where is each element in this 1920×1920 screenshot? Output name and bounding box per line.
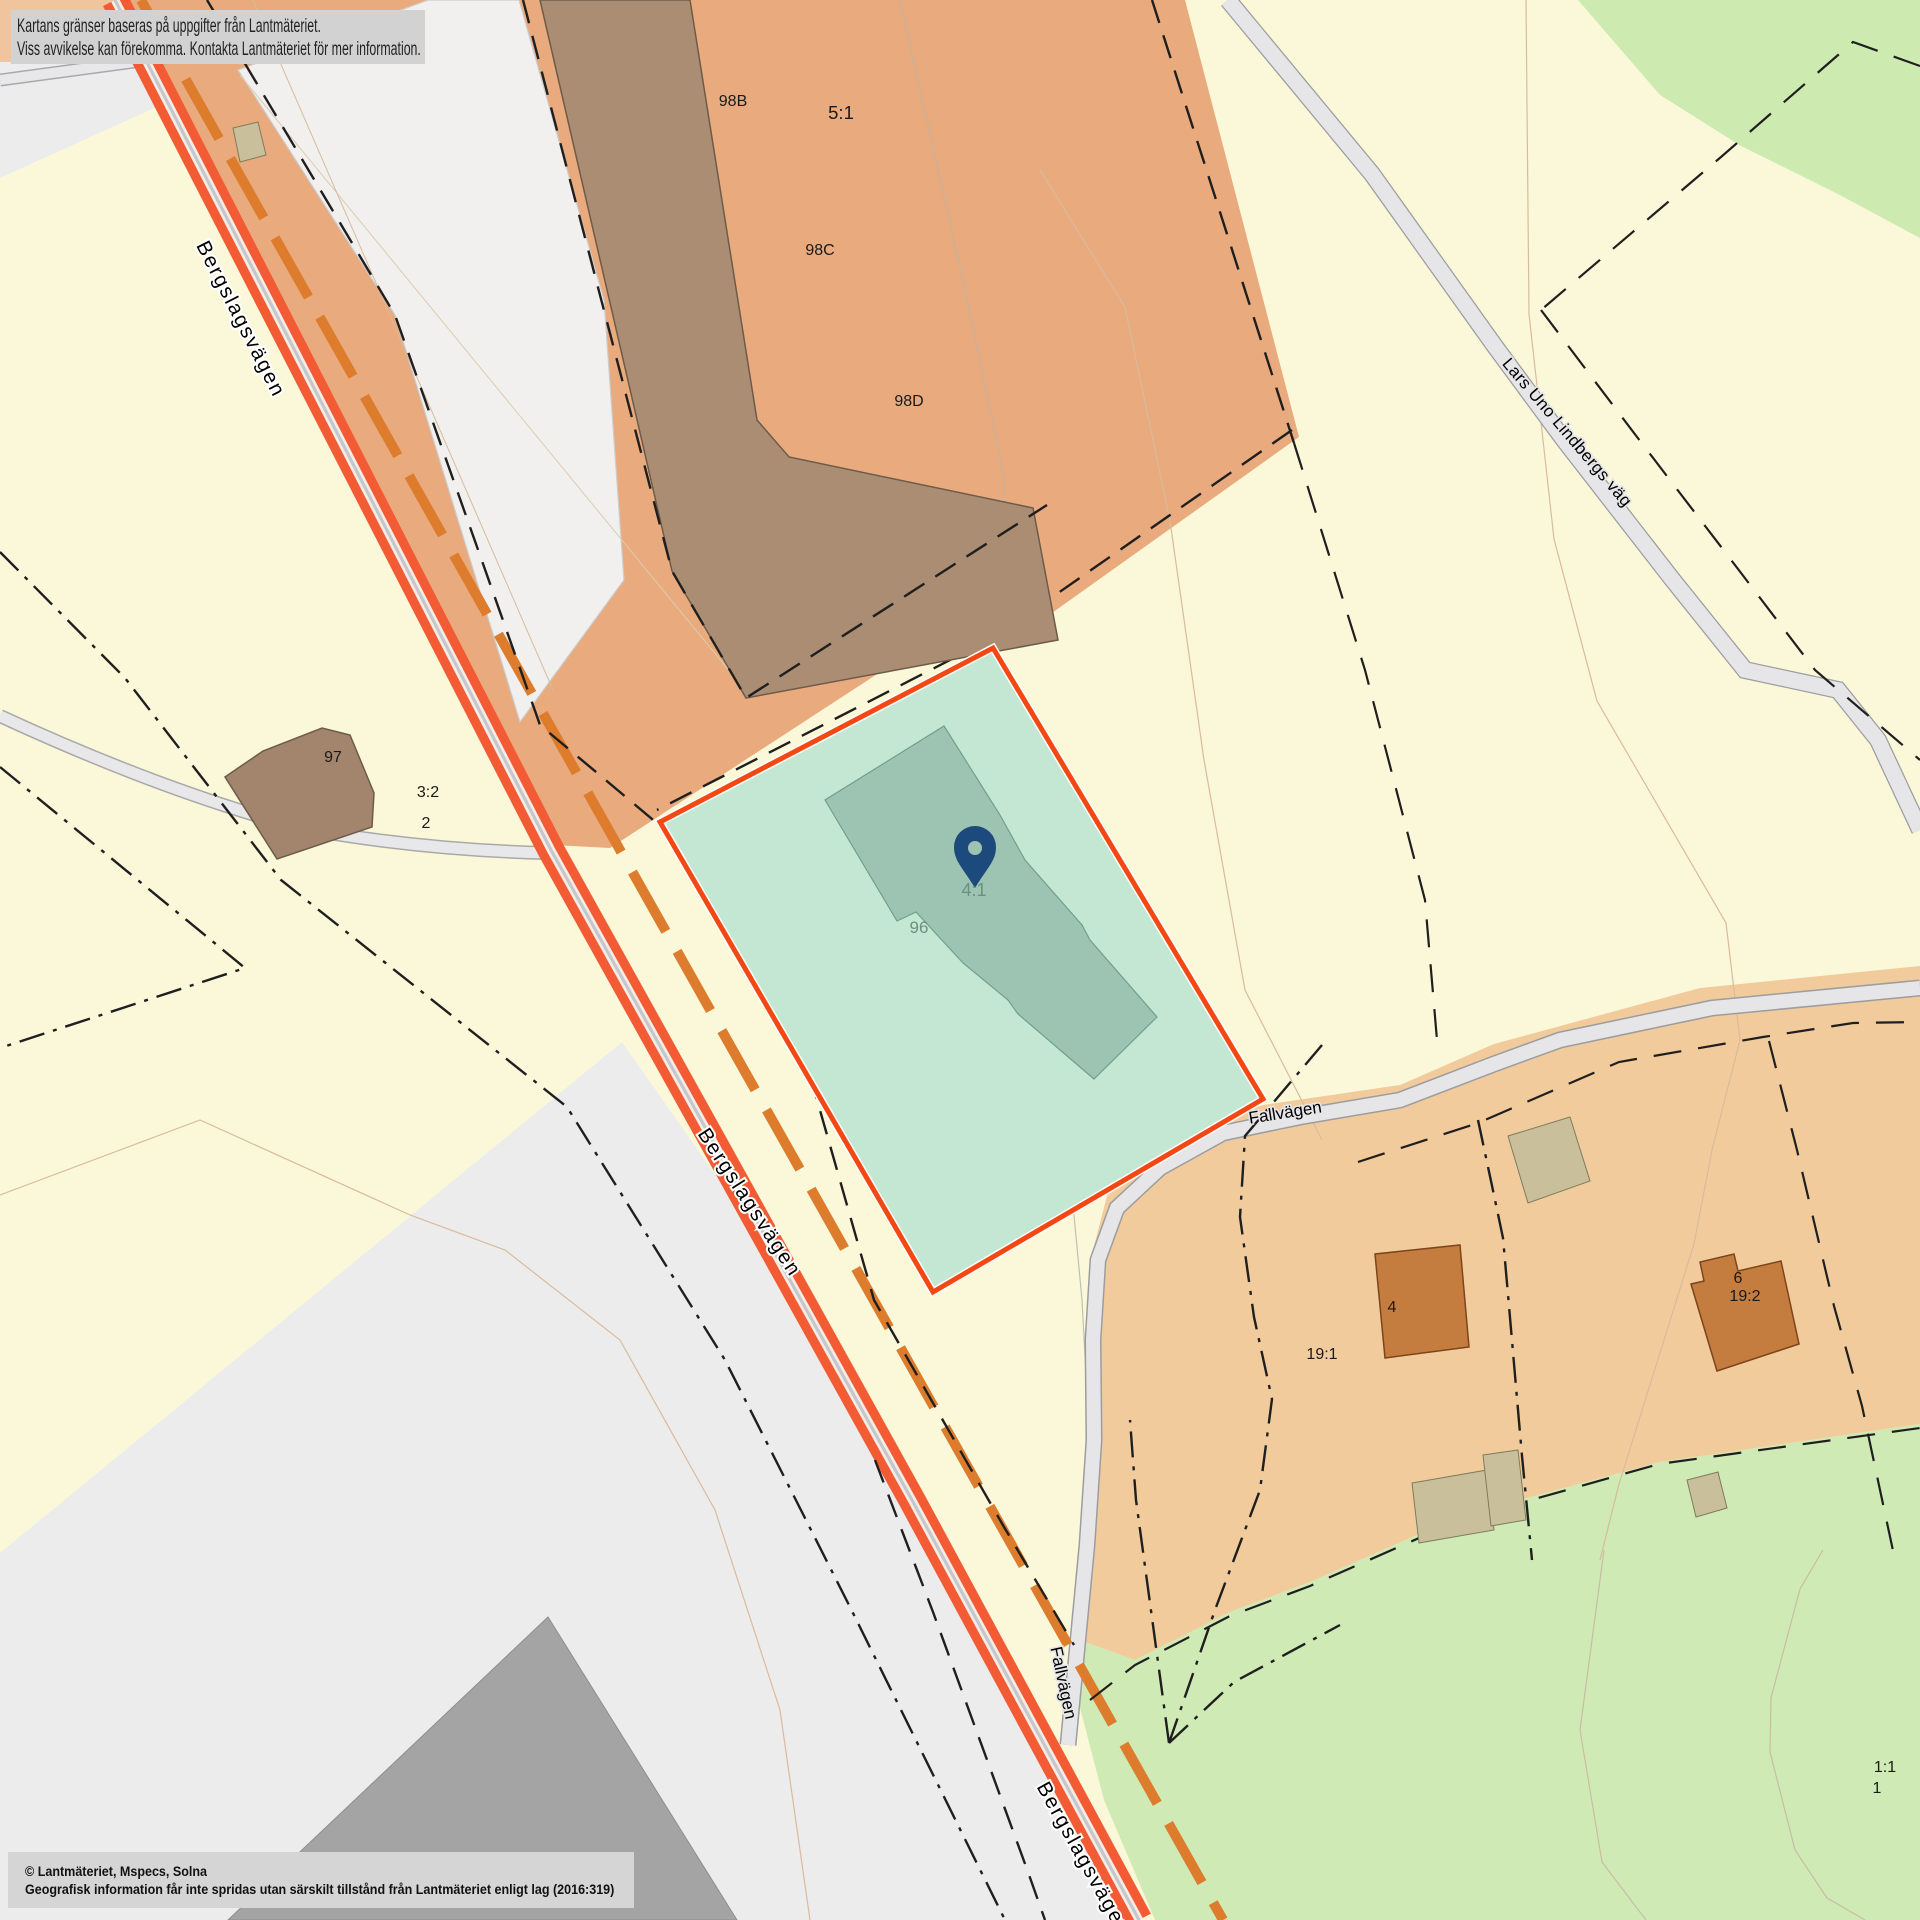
svg-text:98D: 98D — [894, 393, 923, 410]
svg-text:© Lantmäteriet, Mspecs, Solna: © Lantmäteriet, Mspecs, Solna — [25, 1864, 208, 1880]
svg-text:1:1: 1:1 — [1874, 1759, 1896, 1776]
svg-text:98B: 98B — [719, 93, 747, 110]
svg-text:4: 4 — [1388, 1299, 1397, 1316]
svg-text:4:1: 4:1 — [961, 880, 986, 900]
svg-text:97: 97 — [324, 749, 342, 766]
svg-text:19:1: 19:1 — [1306, 1346, 1337, 1363]
svg-text:6: 6 — [1734, 1270, 1743, 1287]
svg-text:5:1: 5:1 — [828, 102, 854, 123]
svg-text:3:2: 3:2 — [417, 784, 439, 801]
svg-text:98C: 98C — [805, 242, 834, 259]
svg-text:19:2: 19:2 — [1729, 1288, 1760, 1305]
svg-text:96: 96 — [910, 918, 929, 937]
svg-text:Geografisk information får int: Geografisk information får inte spridas … — [25, 1882, 614, 1898]
svg-text:Kartans gränser baseras på upp: Kartans gränser baseras på uppgifter frå… — [17, 15, 321, 36]
svg-text:1: 1 — [1873, 1780, 1882, 1797]
svg-text:2: 2 — [422, 815, 431, 832]
svg-text:Viss avvikelse kan förekomma.: Viss avvikelse kan förekomma. Kontakta L… — [17, 38, 421, 59]
